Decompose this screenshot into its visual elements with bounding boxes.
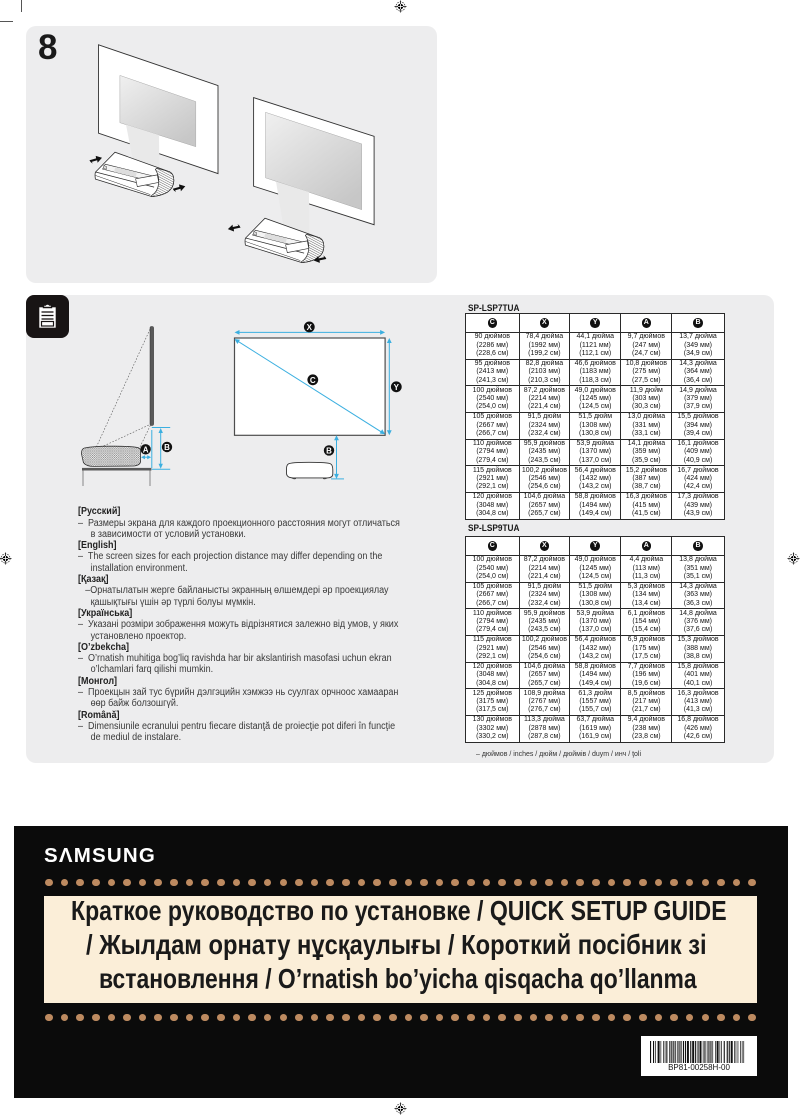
svg-text:X: X bbox=[307, 323, 313, 332]
svg-text:C: C bbox=[310, 376, 316, 385]
svg-text:B: B bbox=[164, 443, 170, 452]
svg-text:Y: Y bbox=[394, 383, 400, 392]
svg-text:A: A bbox=[143, 445, 149, 454]
svg-text:B: B bbox=[326, 447, 332, 456]
